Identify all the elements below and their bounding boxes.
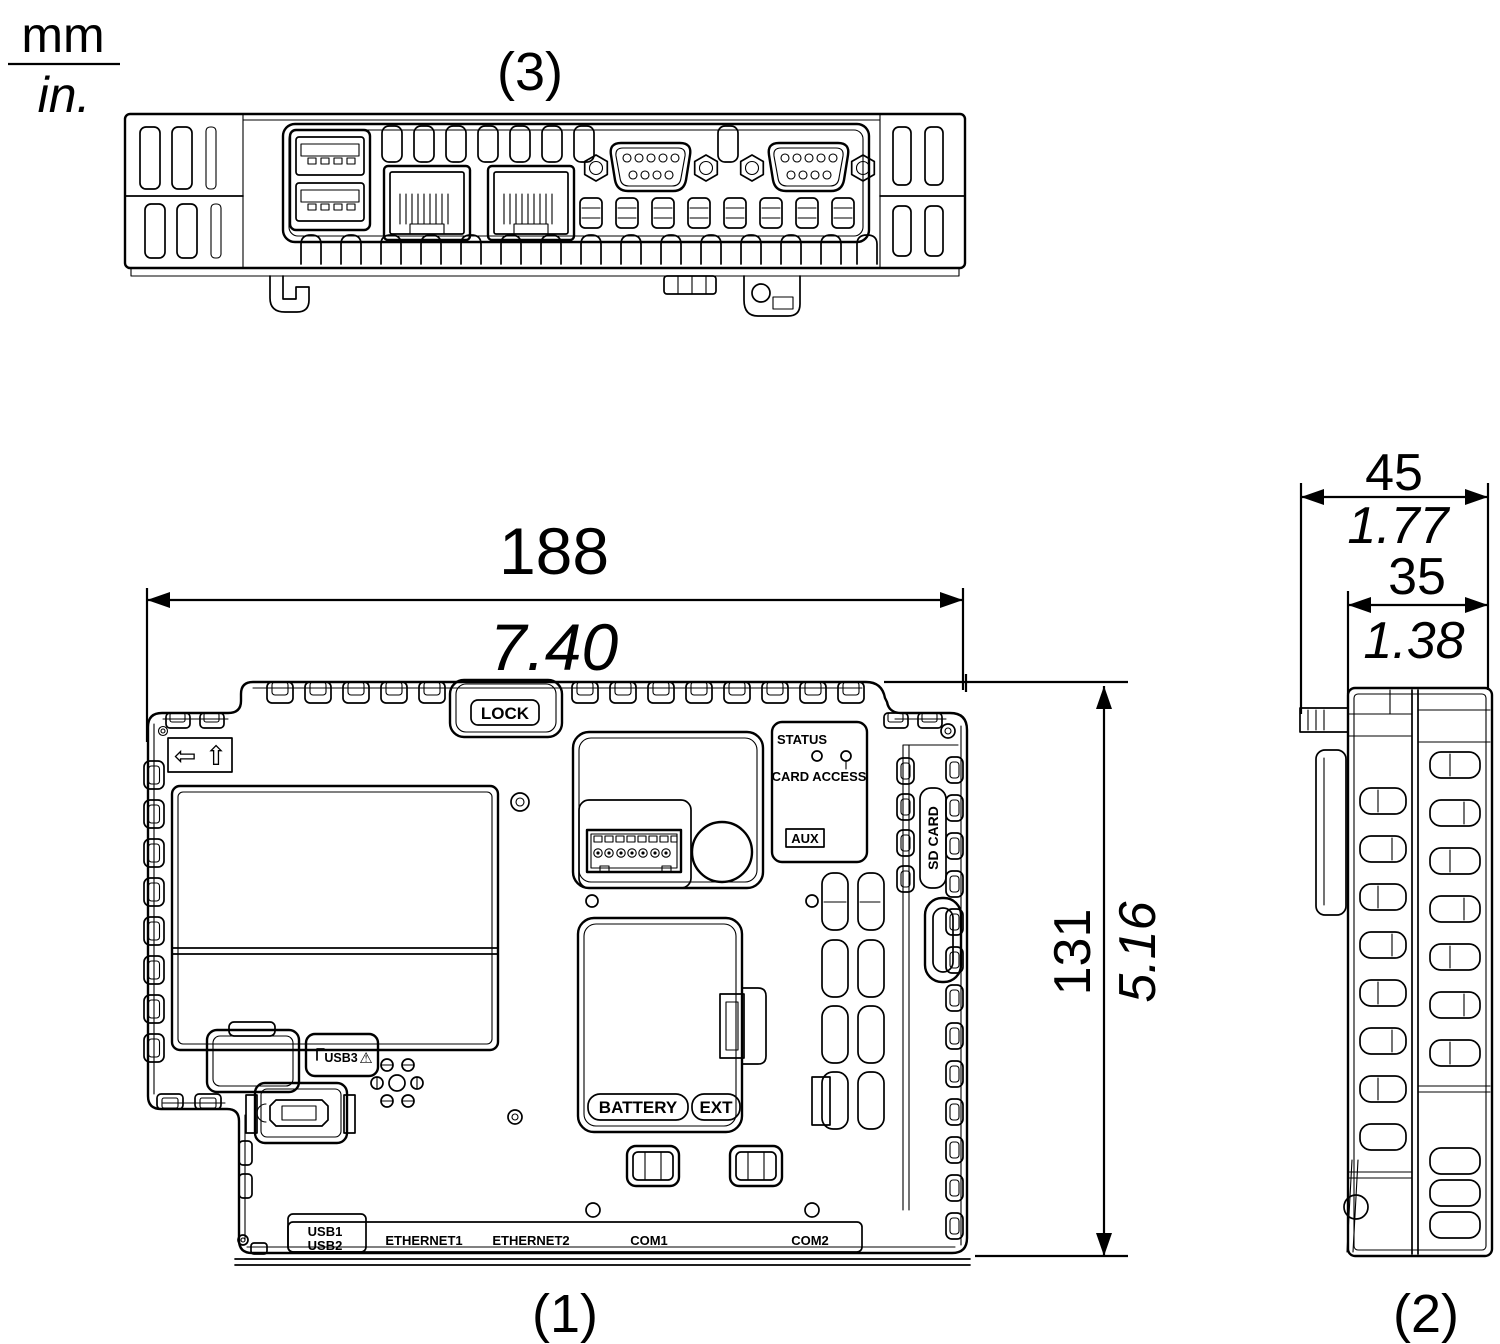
- usb-ports-top: [290, 130, 370, 230]
- side-body-outline: [1348, 688, 1492, 1256]
- side-view-label: (2): [1393, 1284, 1459, 1344]
- sd-card-label: SD CARD: [925, 806, 941, 870]
- battery-compartment: BATTERY EXT: [578, 918, 766, 1132]
- dimension-height: 131 5.16: [884, 674, 1167, 1256]
- up-arrow-icon: ⇧: [205, 741, 228, 772]
- left-arrow-icon: ⇦: [174, 741, 197, 772]
- status-area: STATUS CARD ACCESS AUX: [772, 722, 867, 862]
- ethernet1-label: ETHERNET1: [385, 1233, 462, 1248]
- side-din-tab: [1300, 708, 1348, 732]
- ext-label: EXT: [699, 1098, 733, 1117]
- dim-width-mm: 188: [499, 514, 609, 588]
- battery-latch: [742, 988, 766, 1064]
- aux-label: AUX: [791, 831, 819, 846]
- rear-body-outline: [148, 682, 967, 1253]
- screw-holes: [159, 724, 956, 1245]
- ethernet2-port: [488, 166, 574, 240]
- ethernet2-label: ETHERNET2: [492, 1233, 569, 1248]
- warning-icon: ⚠: [359, 1049, 372, 1067]
- mid-vent-slots: [580, 198, 854, 228]
- usb2-label: USB2: [308, 1238, 343, 1253]
- sd-card-area: SD CARD: [897, 745, 961, 1210]
- card-access-led: [841, 751, 851, 761]
- dim-depth-body-in: 1.38: [1363, 612, 1464, 670]
- orientation-arrows: ⇦ ⇧: [168, 738, 232, 772]
- dimension-drawing: mm in. (3): [0, 0, 1500, 1344]
- dim-depth-overall-mm: 45: [1365, 444, 1423, 502]
- usb3-tag: USB3 ⚠: [306, 1034, 378, 1076]
- card-access-label: CARD ACCESS: [772, 769, 867, 784]
- com2-label: COM2: [791, 1233, 829, 1248]
- side-vents-right: [1418, 752, 1490, 1238]
- com2-pins: [781, 154, 837, 179]
- dim-depth-body-mm: 35: [1388, 548, 1446, 606]
- battery-label: BATTERY: [599, 1098, 678, 1117]
- top-view-label: (3): [497, 42, 563, 102]
- mini-usb-area: [207, 1022, 355, 1143]
- status-label: STATUS: [777, 732, 827, 747]
- dim-height-mm: 131: [1044, 909, 1102, 996]
- com1-screw-left: [585, 155, 608, 181]
- din-hooks: [270, 276, 800, 316]
- dimension-width: 188 7.40: [147, 514, 963, 742]
- panel-divider: [172, 948, 498, 954]
- unit-in-label: in.: [38, 67, 91, 123]
- lock-label: LOCK: [481, 704, 530, 723]
- sd-card-door: [925, 898, 961, 982]
- com1-pins: [623, 154, 679, 179]
- grommet-circle: [692, 822, 752, 882]
- dimension-depth-body: 35 1.38: [1348, 548, 1488, 694]
- top-view: [125, 114, 965, 316]
- top-view-body: [125, 114, 965, 268]
- com2-port: [741, 143, 875, 191]
- mounting-feet: [627, 1146, 782, 1186]
- dim-height-in: 5.16: [1109, 901, 1167, 1002]
- unit-note: mm in.: [8, 7, 120, 123]
- usb1-label: USB1: [308, 1224, 343, 1239]
- rear-vent-slots: [812, 873, 884, 1129]
- side-divider: [1412, 690, 1418, 1254]
- access-panel: [172, 786, 498, 1050]
- side-view: [1300, 688, 1492, 1256]
- side-bezel: [1316, 750, 1346, 915]
- din-clip-right: [880, 127, 965, 256]
- com1-screw-right: [695, 155, 718, 181]
- com1-port: [585, 143, 718, 191]
- step-teeth: [157, 1094, 267, 1254]
- usb3-label: USB3: [324, 1051, 357, 1065]
- status-led: [812, 751, 822, 761]
- power-connector-area: [573, 732, 763, 888]
- technical-drawing-page: mm in. (3): [0, 0, 1500, 1344]
- unit-mm-label: mm: [21, 7, 104, 63]
- rear-view: LOCK ⇦ ⇧: [144, 680, 970, 1265]
- bottom-bar: [235, 1259, 970, 1265]
- rear-view-label: (1): [532, 1284, 598, 1344]
- dim-depth-overall-in: 1.77: [1347, 497, 1450, 555]
- ethernet1-port: [384, 166, 470, 240]
- com1-label: COM1: [630, 1233, 668, 1248]
- terminal-pins: [594, 849, 670, 857]
- dim-width-in: 7.40: [490, 610, 619, 684]
- din-clip-left: [125, 127, 243, 258]
- com2-screw-left: [741, 155, 764, 181]
